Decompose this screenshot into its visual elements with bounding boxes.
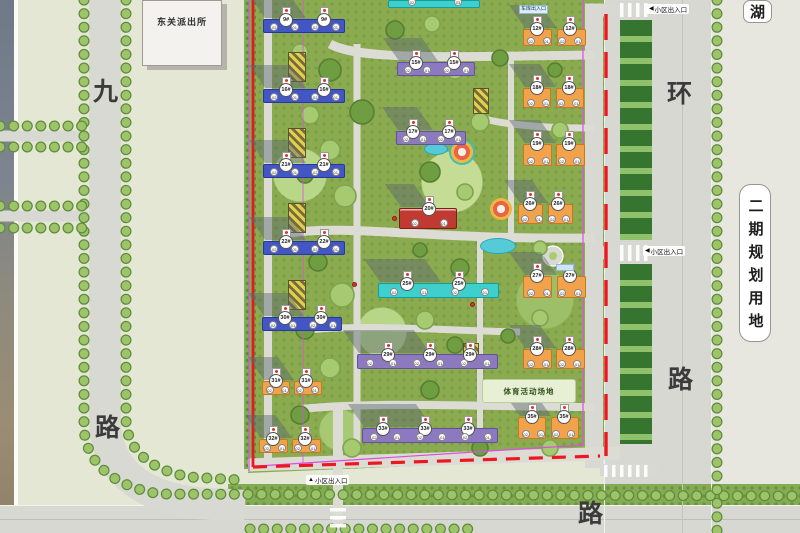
arrow-left-icon: ◀: [649, 6, 654, 12]
road-label-east-1: 环: [667, 82, 692, 107]
garage-entrance-label: 车库出入口: [519, 5, 548, 14]
police-station-label: 东关派出所: [157, 15, 207, 65]
lake-label: 湖: [743, 0, 772, 23]
entrance-label-east: ◀ 小区出入口: [643, 246, 685, 256]
entrance-label-south: ▲ 小区出入口: [306, 475, 349, 485]
police-station-block: 东关派出所: [142, 0, 222, 66]
road-label-west-2: 路: [95, 416, 120, 441]
arrow-up-icon: ▲: [308, 477, 314, 483]
sports-area-label: 体育活动场地: [482, 379, 576, 403]
arrow-left-icon: ◀: [645, 248, 650, 254]
labels-layer: 东关派出所 九 路 环 路 路 湖 二期规划用地 体育活动场地 车库出入口 ◀ …: [0, 0, 800, 533]
entrance-label-north: ◀ 小区出入口: [647, 4, 689, 14]
site-plan-map: 9#9#0201020116#16#0201020121#21#02010201…: [0, 0, 800, 533]
road-label-south: 路: [578, 502, 603, 527]
phase2-label: 二期规划用地: [739, 184, 771, 342]
road-label-east-2: 路: [668, 368, 693, 393]
road-label-west-1: 九: [93, 80, 118, 105]
